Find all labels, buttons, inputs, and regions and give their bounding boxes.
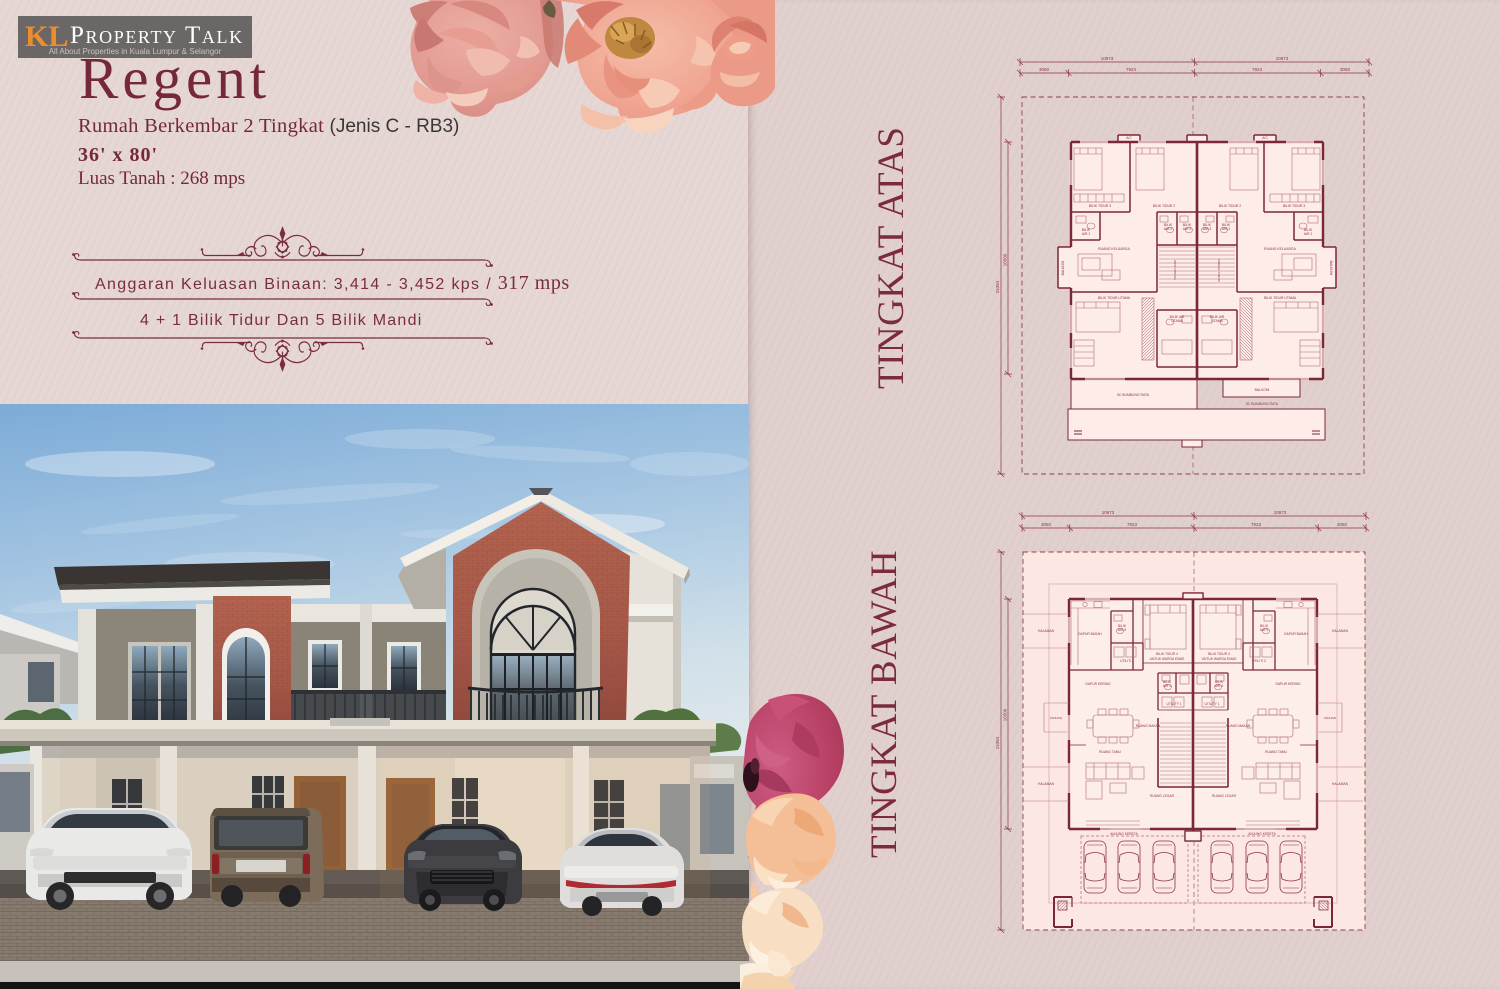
svg-text:ANJUNG: ANJUNG <box>1324 716 1337 720</box>
svg-text:RUANG TAMU: RUANG TAMU <box>1099 750 1121 754</box>
svg-text:HALAMAN: HALAMAN <box>1038 782 1055 786</box>
svg-text:AIR 1: AIR 1 <box>1082 232 1091 236</box>
svg-text:BILIK TIDUR 4: BILIK TIDUR 4 <box>1156 652 1178 656</box>
svg-text:RUANG LEGAR: RUANG LEGAR <box>1150 794 1175 798</box>
svg-text:3050: 3050 <box>1039 67 1050 72</box>
svg-text:5C BUMBUNG RATA: 5C BUMBUNG RATA <box>1246 402 1279 406</box>
svg-text:HALAMAN: HALAMAN <box>1332 782 1349 786</box>
svg-text:HALAMAN: HALAMAN <box>1332 629 1349 633</box>
svg-text:5C BUMBUNG RATA: 5C BUMBUNG RATA <box>1117 393 1150 397</box>
svg-text:3050: 3050 <box>1340 67 1351 72</box>
svg-text:AIR 2: AIR 2 <box>1222 227 1231 231</box>
svg-text:HALAMAN: HALAMAN <box>1038 629 1055 633</box>
svg-text:BILIK TIDUR 2: BILIK TIDUR 2 <box>1153 204 1175 208</box>
svg-text:UTILITI 2: UTILITI 2 <box>1120 659 1134 663</box>
svg-text:AIR 5: AIR 5 <box>1118 628 1126 632</box>
svg-text:AIR 4: AIR 4 <box>1215 684 1223 688</box>
svg-text:BALKONI: BALKONI <box>1255 388 1270 392</box>
svg-text:ANJUNG KERETA: ANJUNG KERETA <box>1248 832 1276 836</box>
svg-text:DAPUR KERING: DAPUR KERING <box>1275 682 1301 686</box>
svg-text:BILIK TIDUR UTAMA: BILIK TIDUR UTAMA <box>1098 296 1131 300</box>
svg-text:AIR 2: AIR 2 <box>1164 227 1173 231</box>
svg-text:7923: 7923 <box>1126 67 1137 72</box>
svg-text:A/C: A/C <box>1126 136 1132 140</box>
svg-text:ANJUNG: ANJUNG <box>1050 716 1063 720</box>
svg-text:UTILITI 2: UTILITI 2 <box>1252 659 1266 663</box>
svg-text:BILIK TIDUR 3: BILIK TIDUR 3 <box>1089 204 1111 208</box>
svg-text:RUANG TAMU: RUANG TAMU <box>1265 750 1287 754</box>
svg-text:UNTUK WARGA EMAS: UNTUK WARGA EMAS <box>1202 657 1237 661</box>
svg-text:UTAMA: UTAMA <box>1211 319 1223 323</box>
svg-text:AIR 3: AIR 3 <box>1203 227 1212 231</box>
svg-text:10973: 10973 <box>1276 56 1289 61</box>
svg-text:UTILITY 1: UTILITY 1 <box>1167 702 1182 706</box>
svg-text:24384: 24384 <box>995 280 1000 293</box>
svg-text:16500: 16500 <box>1003 253 1008 266</box>
svg-text:7923: 7923 <box>1127 522 1138 527</box>
svg-text:BILIK TIDUR 3: BILIK TIDUR 3 <box>1283 204 1305 208</box>
svg-text:3050: 3050 <box>1337 522 1348 527</box>
svg-text:RUANG LEGAR: RUANG LEGAR <box>1212 794 1237 798</box>
svg-text:7923: 7923 <box>1251 522 1262 527</box>
svg-text:7923: 7923 <box>1252 67 1263 72</box>
svg-text:16500: 16500 <box>1003 708 1008 721</box>
svg-text:BILIK TIDUR 2: BILIK TIDUR 2 <box>1219 204 1241 208</box>
svg-text:AIR 5: AIR 5 <box>1260 628 1268 632</box>
svg-text:10973: 10973 <box>1102 510 1115 515</box>
svg-text:RUANG MAKAN: RUANG MAKAN <box>1136 724 1161 728</box>
svg-text:ANJUNG KERETA: ANJUNG KERETA <box>1110 832 1138 836</box>
svg-text:BILIK TIDUR 4: BILIK TIDUR 4 <box>1208 652 1230 656</box>
svg-text:DAPUR KERING: DAPUR KERING <box>1085 682 1111 686</box>
svg-text:RUANG MAKAN: RUANG MAKAN <box>1226 724 1251 728</box>
svg-text:RUANG KELUARGA: RUANG KELUARGA <box>1264 247 1296 251</box>
svg-text:UTAMA: UTAMA <box>1171 319 1183 323</box>
svg-text:UTILITY 1: UTILITY 1 <box>1205 702 1220 706</box>
svg-text:UNTUK WARGA EMAS: UNTUK WARGA EMAS <box>1150 657 1185 661</box>
svg-text:BALKONI: BALKONI <box>1061 261 1065 276</box>
svg-text:TANGGA TURUN: TANGGA TURUN <box>1217 258 1221 282</box>
svg-text:10973: 10973 <box>1101 56 1114 61</box>
svg-text:AIR 1: AIR 1 <box>1304 232 1313 236</box>
svg-text:24384: 24384 <box>995 736 1000 749</box>
svg-text:BALKONI: BALKONI <box>1329 261 1333 276</box>
svg-text:AIR 4: AIR 4 <box>1163 684 1171 688</box>
svg-text:TANGGA NAIK: TANGGA NAIK <box>1173 260 1177 280</box>
svg-text:DAPUR BASAH: DAPUR BASAH <box>1284 632 1308 636</box>
svg-text:3050: 3050 <box>1041 522 1052 527</box>
svg-text:BILIK TIDUR UTAMA: BILIK TIDUR UTAMA <box>1264 296 1297 300</box>
svg-text:DAPUR BASAH: DAPUR BASAH <box>1078 632 1102 636</box>
svg-text:AIR 3: AIR 3 <box>1183 227 1192 231</box>
svg-text:RUANG KELUARGA: RUANG KELUARGA <box>1098 247 1130 251</box>
svg-text:A/C: A/C <box>1262 136 1268 140</box>
svg-text:10973: 10973 <box>1274 510 1287 515</box>
